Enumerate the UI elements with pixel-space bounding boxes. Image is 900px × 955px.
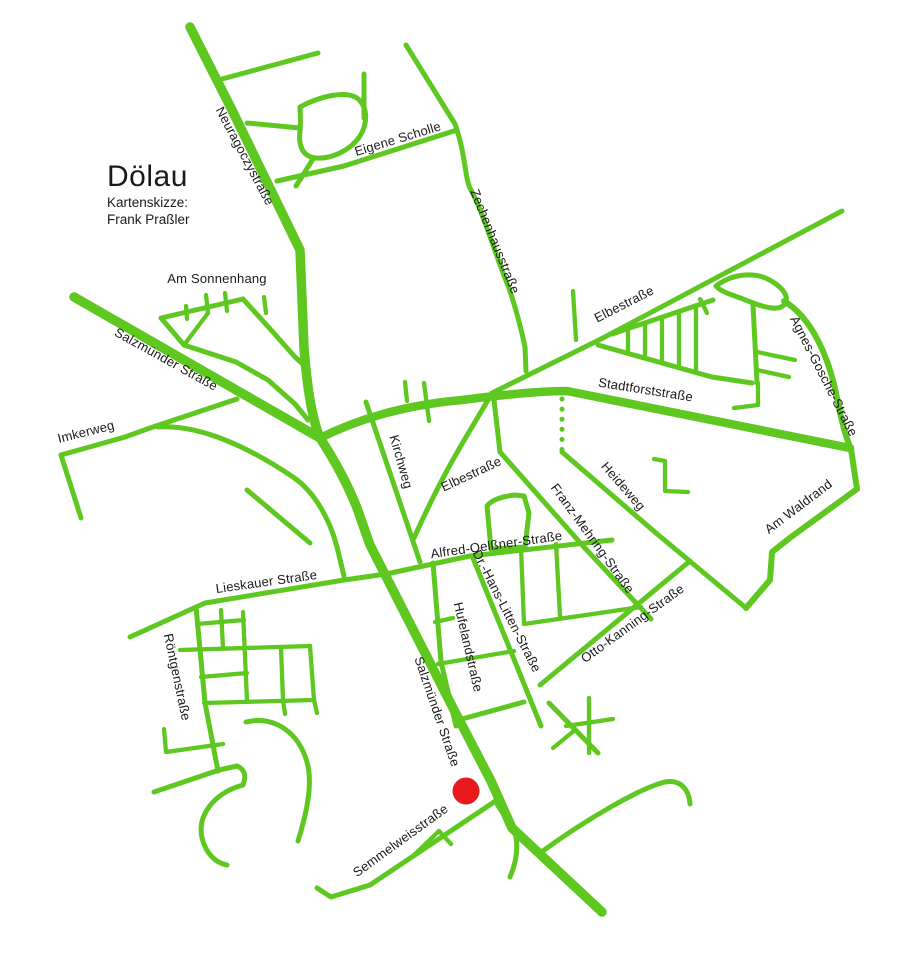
street-am-sonnenhang-upper	[161, 299, 243, 318]
street-curve-west	[158, 427, 344, 576]
street-leaf-loop	[716, 275, 786, 308]
street-vertical-east-rung-1	[757, 352, 795, 360]
street-label-roentgenstrasse: Röntgenstraße	[161, 632, 194, 722]
street-label-otto-kanning-strasse: Otto-Kanning-Straße	[578, 581, 687, 666]
street-sonnenhang-tooth-1	[186, 306, 187, 319]
street-label-hufelandstrasse: Hufelandstraße	[451, 601, 486, 694]
street-branch-east-2-tick	[553, 730, 575, 748]
street-sonnenhang-tooth-3	[225, 293, 227, 311]
street-main-road-spur	[497, 804, 517, 877]
street-ladder-stub-2	[314, 700, 317, 713]
street-block-vertical-1	[521, 548, 524, 624]
street-label-salzmuender-strasse-nw: Salzmünder Straße	[112, 325, 220, 394]
street-label-elbestrasse-mitte: Elbestraße	[439, 453, 504, 494]
street-ladder-rung-1	[197, 620, 244, 624]
street-stub-arc-1	[405, 382, 407, 401]
map-labels: Dölau Kartenskizze: Frank Praßler Neurag…	[56, 104, 861, 880]
street-label-am-waldrand: Am Waldrand	[762, 476, 835, 536]
street-ladder-vertical-2	[243, 612, 247, 701]
street-label-elbestrasse-nord: Elbestraße	[592, 283, 657, 326]
street-heideweg-hook	[654, 459, 688, 492]
map-page: Dölau Kartenskizze: Frank Praßler Neurag…	[0, 0, 900, 955]
street-stub-arc-2	[424, 383, 429, 421]
street-southwest-arc	[246, 721, 309, 841]
street-ladder-stub-1	[283, 700, 285, 714]
street-southwest-diagonal	[154, 766, 237, 792]
street-semmelweisstrasse	[317, 800, 497, 897]
street-vertical-east-hook	[734, 383, 758, 408]
street-label-agnes-gosche-strasse: Agnes-Gosche-Straße	[787, 313, 861, 438]
street-label-alfred-oelssner-strasse: Alfred-Oelßner-Straße	[430, 528, 564, 561]
map-subtitle-line2: Frank Praßler	[107, 212, 190, 227]
map-subtitle-line1: Kartenskizze:	[107, 195, 188, 210]
street-imkerweg-sued	[61, 455, 81, 518]
street-vertical-east-rung-2	[757, 370, 789, 377]
street-curve-west-rung	[247, 490, 310, 543]
street-sonnenhang-tooth-2	[206, 295, 208, 313]
street-am-waldrand	[746, 449, 857, 608]
street-block-vertical-2	[556, 544, 560, 616]
street-sonnenhang-tooth-4	[264, 297, 266, 313]
street-branch-top	[222, 53, 318, 79]
street-stub-center-north	[573, 291, 576, 340]
street-southwest-connector	[237, 766, 245, 785]
street-ladder-rung-4	[204, 700, 314, 703]
map-title: Dölau	[107, 160, 188, 193]
street-ladder-rung-3	[201, 673, 247, 677]
street-zechenhausstrasse	[406, 45, 526, 371]
street-ladder-vertical-4	[281, 648, 283, 700]
street-ladder-vertical-3	[310, 646, 314, 700]
street-label-am-sonnenhang: Am Sonnenhang	[167, 271, 266, 286]
street-label-zechenhausstrasse: Zechenhausstraße	[467, 187, 523, 296]
map-canvas: Dölau Kartenskizze: Frank Praßler Neurag…	[0, 0, 900, 955]
street-branch-east-1	[462, 702, 524, 719]
street-loop-connector-west	[247, 123, 300, 128]
street-southeast-curve	[540, 782, 690, 853]
street-southwest-c-curve	[201, 785, 243, 865]
street-ladder-tooth	[221, 610, 223, 648]
street-label-neuragoczystrasse: Neuragoczystraße	[213, 104, 278, 208]
location-marker	[453, 778, 480, 805]
street-am-sonnenhang-east	[243, 299, 305, 366]
